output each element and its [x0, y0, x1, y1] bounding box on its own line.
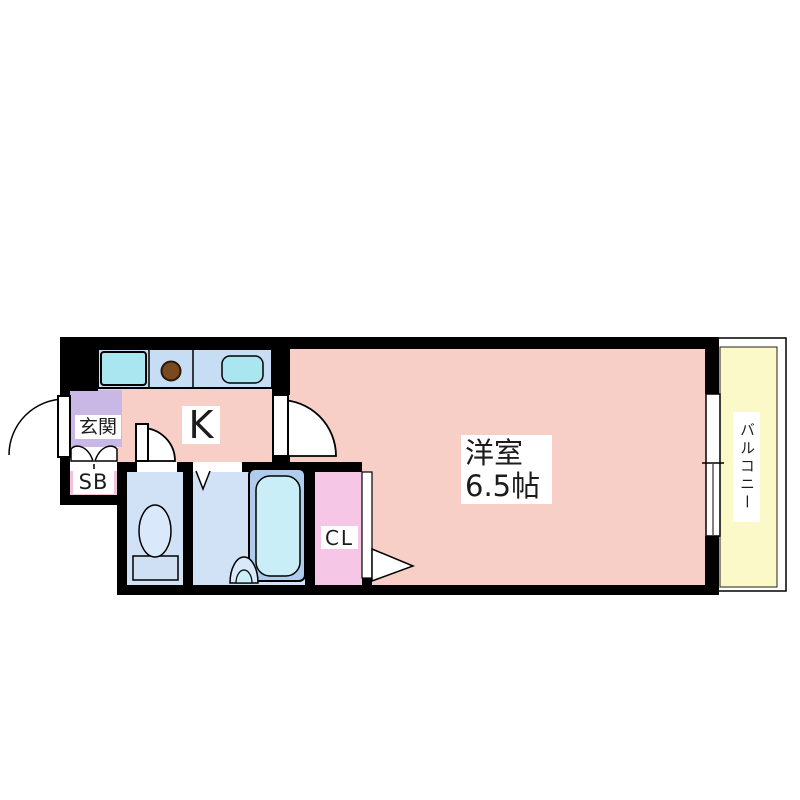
entrance-door-leaf: [58, 396, 70, 457]
floor-plan-drawing: [0, 0, 800, 800]
shoebox-label: SB: [73, 471, 114, 494]
wall-bottom-left: [60, 495, 127, 505]
toilet-door-leaf: [136, 424, 148, 461]
kitchen-stove-top: [222, 356, 263, 383]
wall-bottom: [117, 585, 719, 595]
room-type-label: 洋室: [465, 437, 552, 470]
toilet-tank: [133, 556, 178, 580]
wall-closet-stub: [362, 578, 372, 585]
kitchen-sink: [101, 352, 146, 385]
balcony-label: バルコニー: [733, 412, 760, 522]
room-label: 洋室 6.5帖: [461, 435, 552, 504]
room-door-leaf: [273, 395, 288, 456]
stove-burner-icon: [162, 362, 181, 381]
toilet-bowl: [139, 505, 171, 557]
floor-plan-canvas: 玄関 SB K CL 洋室 6.5帖 バルコニー: [0, 0, 800, 800]
entrance-label: 玄関: [75, 415, 121, 439]
closet-door: [362, 472, 372, 578]
wall-toilet-bath: [183, 462, 193, 585]
wall-kitchen-room-upper: [272, 349, 290, 395]
closet-label: CL: [321, 526, 358, 549]
wall-left-vertical: [117, 462, 127, 595]
entrance-door-arc: [9, 399, 65, 455]
wall-right-upper: [705, 337, 719, 394]
wall-bath-closet: [305, 462, 315, 585]
wall-corner-block: [70, 349, 98, 391]
wall-left-upper: [60, 337, 70, 397]
bathtub-inner: [256, 476, 300, 576]
kitchen-label: K: [182, 406, 220, 444]
room-size-label: 6.5帖: [465, 470, 552, 503]
wall-top: [60, 337, 716, 349]
wall-right-lower: [705, 536, 719, 595]
wall-hall-segment-a: [127, 462, 137, 472]
